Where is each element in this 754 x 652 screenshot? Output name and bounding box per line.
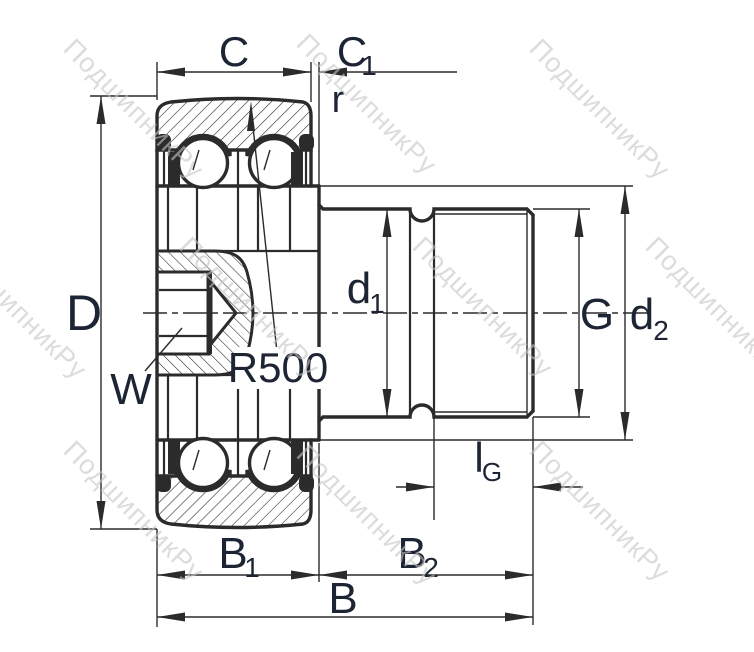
drawing-canvas: C C 1 r D W R500 d 1 G d 2 l G B 1 B 2 B… — [0, 0, 754, 652]
seal-icon — [291, 152, 303, 186]
seal-icon — [168, 440, 180, 474]
dim-label-d2-sub: 2 — [653, 315, 669, 346]
dim-label-B1-sub: 1 — [244, 552, 260, 583]
watermark-text: ПодшипникРу — [524, 33, 676, 185]
dim-label-d2: d — [630, 290, 654, 339]
dim-label-d1-sub: 1 — [369, 288, 385, 319]
watermark-text: ПодшипникРу — [524, 435, 676, 587]
seal-clamp-icon — [299, 134, 314, 151]
ball — [179, 439, 228, 488]
dim-label-B: B — [328, 574, 357, 623]
seal-clamp-icon — [156, 475, 171, 492]
dim-label-C: C — [219, 28, 249, 75]
dim-label-D: D — [66, 285, 102, 341]
watermark-text: ПодшипникРу — [640, 231, 754, 383]
dim-label-C1-sub: 1 — [361, 50, 377, 81]
watermark-text: ПодшипникРу — [291, 439, 443, 591]
stud-top-edge — [319, 205, 533, 221]
dim-label-lG-sub: G — [482, 457, 502, 487]
dim-label-W: W — [110, 365, 152, 414]
stud-bottom-edge — [319, 405, 533, 421]
watermark-text: ПодшипникРу — [407, 231, 559, 383]
bearing-technical-drawing: C C 1 r D W R500 d 1 G d 2 l G B 1 B 2 B… — [0, 0, 754, 652]
dim-label-G: G — [580, 290, 614, 339]
dim-label-d1: d — [347, 264, 371, 313]
